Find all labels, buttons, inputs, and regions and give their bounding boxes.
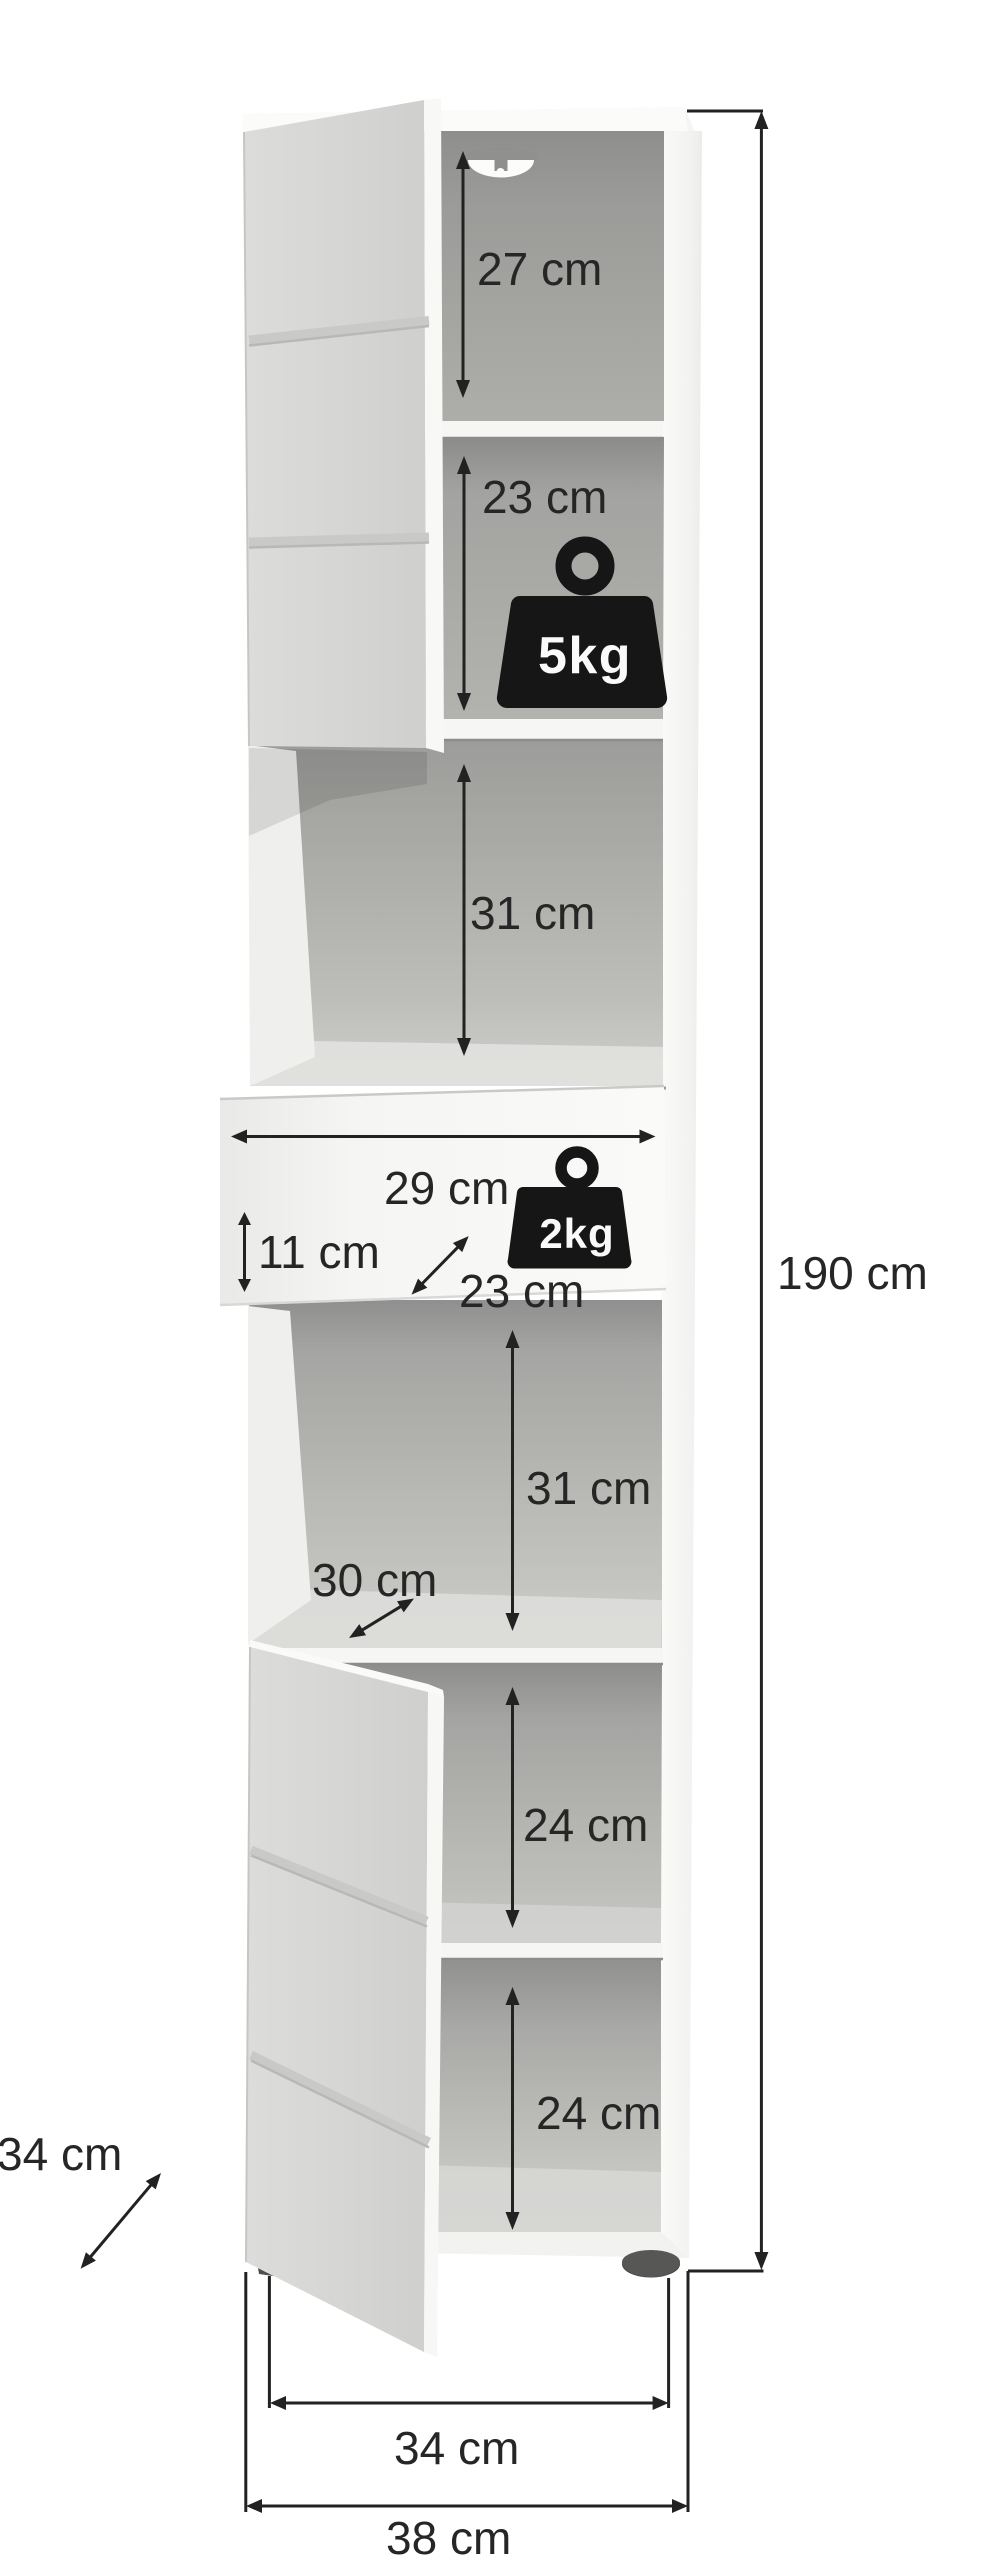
svg-text:23 cm: 23 cm	[459, 1265, 584, 1317]
svg-text:23 cm: 23 cm	[482, 471, 607, 523]
svg-text:190 cm: 190 cm	[777, 1247, 928, 1299]
svg-text:24 cm: 24 cm	[536, 2087, 661, 2139]
svg-text:31 cm: 31 cm	[470, 887, 595, 939]
svg-text:34 cm: 34 cm	[394, 2422, 519, 2474]
svg-text:38 cm: 38 cm	[386, 2512, 511, 2560]
svg-text:31 cm: 31 cm	[526, 1462, 651, 1514]
svg-text:24 cm: 24 cm	[523, 1799, 648, 1851]
svg-text:27 cm: 27 cm	[477, 243, 602, 295]
svg-text:29 cm: 29 cm	[384, 1162, 509, 1214]
svg-text:2kg: 2kg	[539, 1210, 614, 1257]
svg-text:5kg: 5kg	[538, 627, 632, 685]
svg-text:11 cm: 11 cm	[258, 1226, 380, 1278]
svg-text:30 cm: 30 cm	[312, 1554, 437, 1606]
svg-text:34 cm: 34 cm	[0, 2128, 122, 2180]
